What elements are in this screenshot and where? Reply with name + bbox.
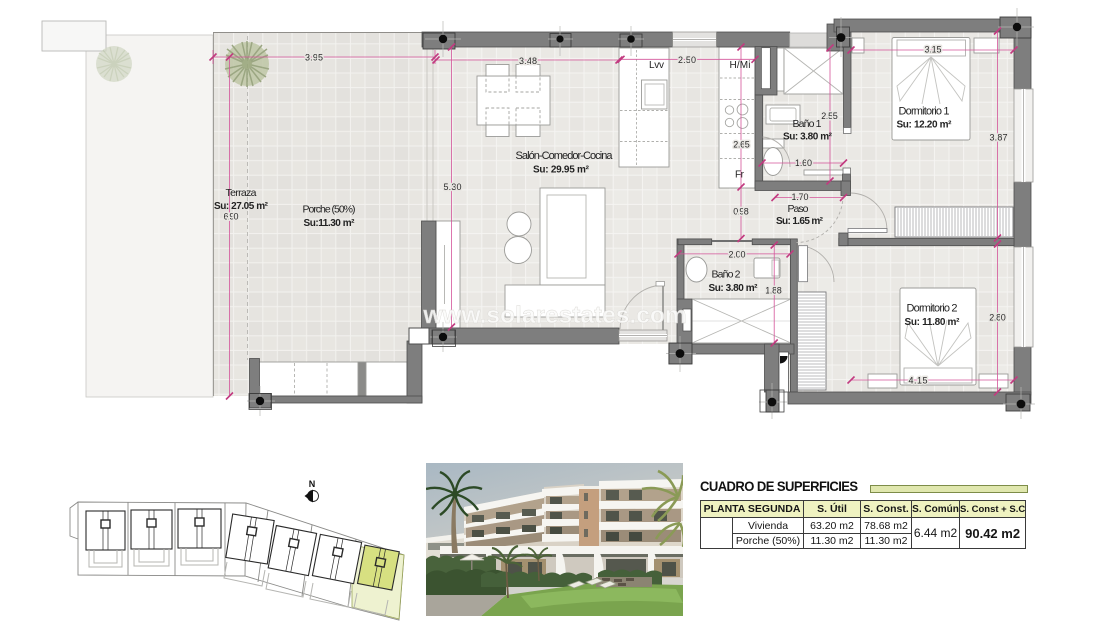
svg-text:Lvv: Lvv: [649, 60, 664, 71]
svg-text:Su: 27.05 m²: Su: 27.05 m²: [214, 201, 269, 212]
svg-text:Fr: Fr: [735, 170, 745, 181]
svg-text:2.00: 2.00: [729, 250, 746, 260]
svg-text:Porche (50%): Porche (50%): [303, 204, 356, 216]
svg-text:Su: 3.80 m²: Su: 3.80 m²: [783, 132, 833, 143]
svg-text:2.65: 2.65: [733, 140, 750, 150]
svg-text:H/Mi: H/Mi: [730, 60, 751, 71]
svg-text:2.55: 2.55: [821, 111, 838, 121]
svg-text:6.90: 6.90: [224, 212, 239, 222]
svg-text:1.88: 1.88: [765, 286, 782, 296]
svg-text:Su:11.30 m²: Su:11.30 m²: [304, 218, 356, 229]
svg-text:www.solarestates.com: www.solarestates.com: [422, 302, 686, 329]
svg-text:N: N: [309, 479, 316, 489]
svg-text:Su: 3.80 m²: Su: 3.80 m²: [709, 283, 759, 294]
svg-text:3.15: 3.15: [925, 45, 942, 55]
svg-text:Dormitorio 2: Dormitorio 2: [907, 303, 958, 315]
svg-text:Su: 11.80 m²: Su: 11.80 m²: [905, 317, 961, 328]
svg-text:2.50: 2.50: [678, 55, 696, 65]
svg-text:1.60: 1.60: [795, 158, 812, 168]
svg-text:5.30: 5.30: [444, 182, 462, 192]
svg-text:2.80: 2.80: [989, 313, 1006, 323]
svg-text:3.95: 3.95: [305, 53, 323, 63]
svg-text:Su: 12.20 m²: Su: 12.20 m²: [897, 120, 953, 131]
svg-text:Dormitorio 1: Dormitorio 1: [899, 106, 950, 118]
svg-text:Su: 29.95 m²: Su: 29.95 m²: [533, 165, 590, 176]
svg-text:3.87: 3.87: [990, 133, 1008, 143]
svg-text:4.15: 4.15: [909, 376, 928, 386]
svg-text:Baño 2: Baño 2: [712, 269, 741, 281]
svg-text:0.98: 0.98: [733, 207, 749, 217]
svg-text:Terraza: Terraza: [226, 187, 257, 199]
svg-text:3.48: 3.48: [519, 56, 537, 66]
svg-text:1.70: 1.70: [792, 192, 809, 202]
svg-text:Baño 1: Baño 1: [793, 118, 822, 130]
svg-text:Salón-Comedor-Cocina: Salón-Comedor-Cocina: [516, 150, 614, 162]
svg-text:Paso: Paso: [788, 203, 809, 215]
svg-text:Su: 1.65 m²: Su: 1.65 m²: [776, 216, 824, 227]
